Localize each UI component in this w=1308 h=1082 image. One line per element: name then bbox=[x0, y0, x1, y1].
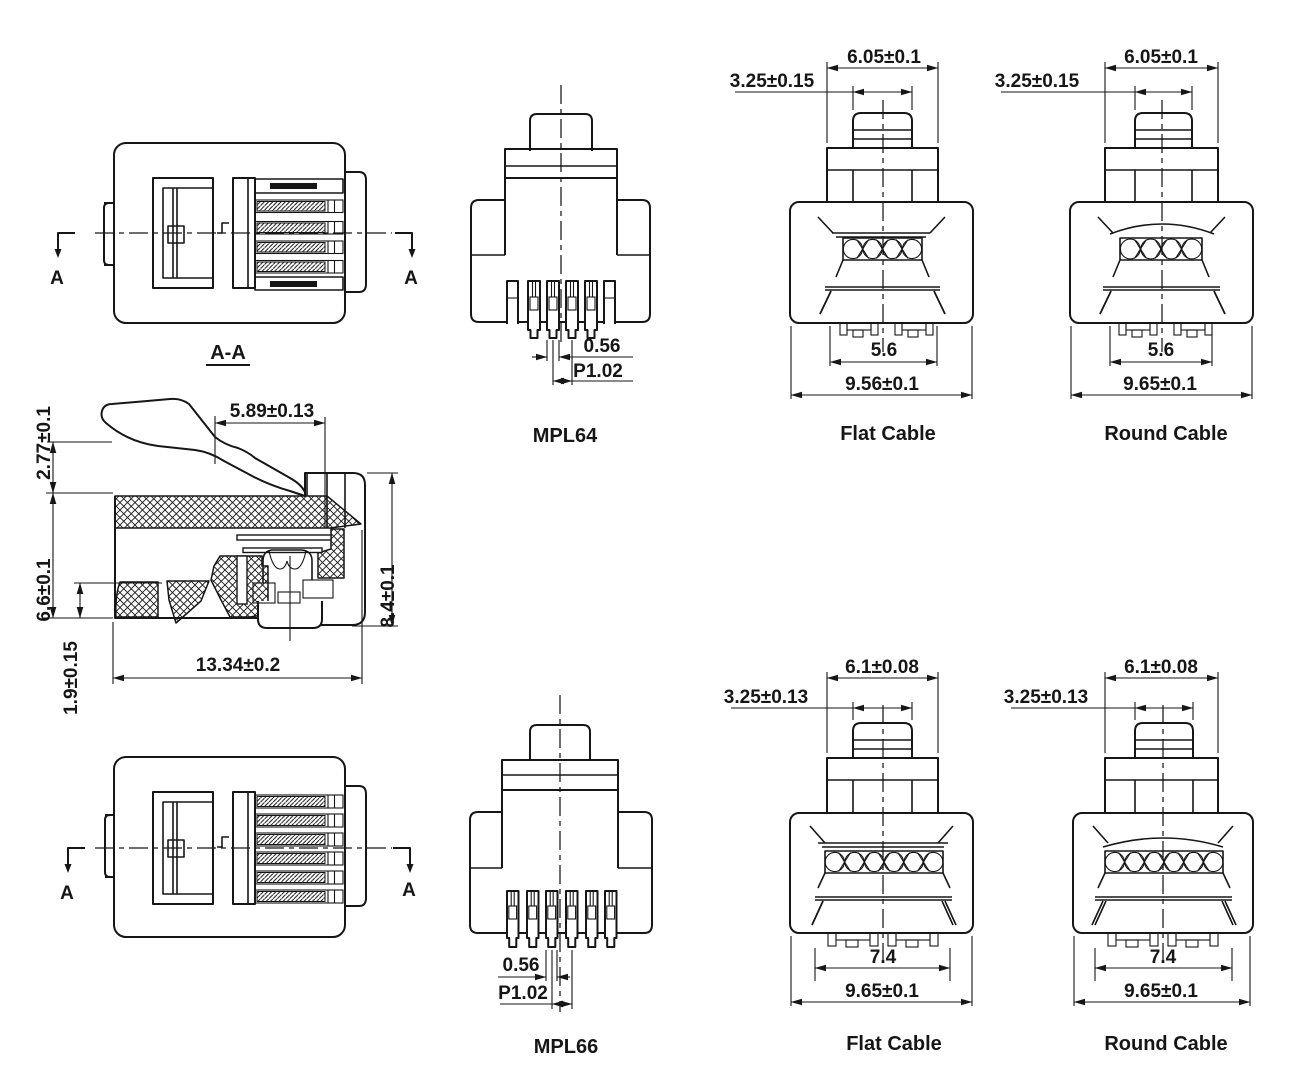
dim-contact-span: 5.6 bbox=[871, 340, 897, 361]
dim-contact-span: 7.4 bbox=[1150, 947, 1177, 968]
cable-boot bbox=[345, 786, 366, 906]
pins-6p6c bbox=[507, 891, 617, 947]
view-rear-round64: 6.05±0.1 3.25±0.15 5.6 9.65±0.1 Round Ca… bbox=[995, 47, 1253, 445]
dim-tab-width: 6.1±0.08 bbox=[1124, 657, 1198, 678]
dim-pin-pitch: P1.02 bbox=[573, 361, 623, 382]
view-rear-flat66: 6.1±0.08 3.25±0.13 7.4 9.65±0.1 Flat Cab… bbox=[724, 657, 973, 1055]
dim-tab-width: 6.1±0.08 bbox=[845, 657, 919, 678]
cable-type-label: Round Cable bbox=[1104, 423, 1227, 445]
section-arrow-icon bbox=[409, 249, 416, 258]
body-top-hatched bbox=[115, 496, 361, 528]
section-marker-left: A bbox=[60, 848, 85, 904]
dim-body-width: 9.65±0.1 bbox=[1123, 374, 1197, 395]
section-marker-left: A bbox=[50, 233, 75, 289]
dim-body-height: 6.6±0.1 bbox=[34, 558, 55, 622]
dim-latch-height: 2.77±0.1 bbox=[34, 406, 55, 480]
dim-pin-pitch: P1.02 bbox=[498, 983, 548, 1004]
dim-latch-width: 3.25±0.15 bbox=[730, 71, 815, 92]
cable-type-label: Flat Cable bbox=[846, 1033, 942, 1055]
dim-latch-width: 3.25±0.13 bbox=[724, 687, 808, 708]
dim-tab-width: 6.05±0.1 bbox=[847, 47, 921, 68]
dim-latch-width: 3.25±0.15 bbox=[995, 71, 1080, 92]
plug-body bbox=[790, 202, 973, 323]
connector-drawing-svg: A A A-A bbox=[0, 0, 1308, 1082]
view-front-mpl66: 0.56 P1.02 MPL66 bbox=[470, 695, 652, 1058]
section-marker-letter: A bbox=[402, 880, 416, 901]
dim-latch-width: 3.25±0.13 bbox=[1004, 687, 1088, 708]
section-marker-letter: A bbox=[60, 883, 74, 904]
connector-body-outline bbox=[114, 757, 345, 937]
dim-tab-width: 6.05±0.1 bbox=[1124, 47, 1198, 68]
dim-nose-height: 1.9±0.15 bbox=[61, 641, 82, 715]
part-label-mpl66: MPL66 bbox=[534, 1036, 598, 1058]
dim-body-width: 9.56±0.1 bbox=[845, 374, 919, 395]
strain-relief-teeth bbox=[1119, 323, 1212, 337]
section-marker-letter: A bbox=[50, 268, 64, 289]
view-front-mpl64: 0.56 P1.02 MPL64 bbox=[471, 85, 650, 447]
technical-drawing-canvas: A A A-A bbox=[0, 0, 1308, 1082]
dim-body-width: 9.65±0.1 bbox=[845, 981, 919, 1002]
nose-hatched-mid bbox=[167, 581, 209, 623]
cable-type-label: Round Cable bbox=[1104, 1033, 1227, 1055]
dim-contact-span: 5.6 bbox=[1148, 340, 1174, 361]
view-side-mpl66: A A bbox=[60, 757, 416, 937]
dim-body-width: 9.65±0.1 bbox=[1124, 981, 1198, 1002]
section-marker-right: A bbox=[395, 233, 418, 289]
dim-overall-length: 13.34±0.2 bbox=[196, 655, 280, 676]
plug-body bbox=[470, 812, 652, 933]
view-side-mpl64: A A A-A bbox=[50, 143, 418, 365]
view-cross-section: 2.77±0.1 6.6±0.1 1.9±0.15 8.4±0.1 5.89±0… bbox=[34, 399, 399, 715]
section-arrow-icon bbox=[407, 864, 414, 873]
part-label-mpl64: MPL64 bbox=[533, 425, 598, 447]
dim-pin-width: 0.56 bbox=[584, 336, 621, 357]
dim-contact-span: 7.4 bbox=[870, 947, 897, 968]
section-arrow-icon bbox=[55, 249, 62, 258]
section-view-label: A-A bbox=[210, 342, 246, 364]
dim-latch-length: 5.89±0.13 bbox=[230, 401, 314, 422]
section-marker-letter: A bbox=[404, 268, 418, 289]
dim-overall-height: 8.4±0.1 bbox=[378, 564, 399, 628]
strain-relief-teeth bbox=[840, 323, 933, 337]
nose-hatched-left bbox=[116, 582, 158, 617]
section-marker-right: A bbox=[393, 848, 416, 901]
cable-boot bbox=[345, 172, 366, 292]
latch-flange bbox=[1105, 758, 1218, 813]
cable-type-label: Flat Cable bbox=[840, 423, 936, 445]
view-rear-flat64: 6.05±0.1 3.25±0.15 5.6 9.56±0.1 Flat Cab… bbox=[730, 47, 973, 445]
contact-blade-upper bbox=[237, 535, 331, 540]
section-arrow-icon bbox=[65, 864, 72, 873]
view-rear-round66: 6.1±0.08 3.25±0.13 7.4 9.65±0.1 Round Ca… bbox=[1004, 657, 1253, 1055]
dim-pin-width: 0.56 bbox=[503, 955, 540, 976]
